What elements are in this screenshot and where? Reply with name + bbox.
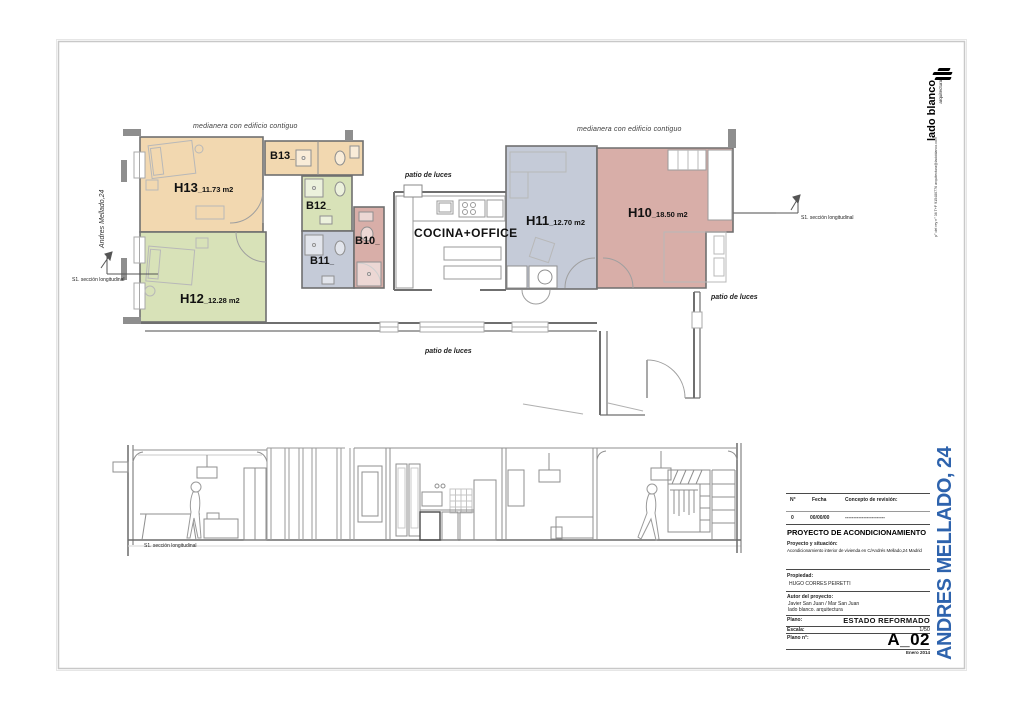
logo-tagline: arquitectura bbox=[938, 80, 943, 141]
rev-fecha-header: Fecha bbox=[812, 497, 826, 503]
situacion-label: Proyecto y situación: bbox=[787, 541, 838, 547]
room-h12 bbox=[140, 232, 266, 322]
section-label: S1. sección longitudinal bbox=[144, 543, 197, 549]
autor-value-2: lado blanco. arquitectura bbox=[788, 607, 843, 613]
sheet-frame bbox=[57, 40, 967, 671]
plano-value: ESTADO REFORMADO bbox=[786, 616, 930, 625]
drawing-sheet: medianera con edificio contiguo medianer… bbox=[0, 0, 1024, 724]
titleblock-line bbox=[786, 493, 930, 494]
room-label-h10: H10_18.50 m2 bbox=[628, 204, 688, 222]
propiedad-label: Propiedad: bbox=[787, 573, 813, 579]
person-walking bbox=[638, 484, 659, 540]
room-label-h12: H12_12.28 m2 bbox=[180, 290, 240, 308]
rev-no-value: 0 bbox=[791, 515, 794, 521]
room-label-h11: H11_12.70 m2 bbox=[526, 212, 585, 230]
room-label-b11: B11_ bbox=[310, 251, 334, 269]
room-label-b12: B12_ bbox=[306, 196, 331, 214]
room-label-h13: H13_11.73 m2 bbox=[174, 179, 233, 197]
autor-label: Autor del proyecto: bbox=[787, 594, 833, 600]
situacion-value: Acondicionamiento interior de vivienda e… bbox=[787, 548, 922, 553]
party-wall-label-right: medianera con edificio contiguo bbox=[577, 126, 682, 133]
room-label-b10: B10_ bbox=[355, 231, 380, 249]
logo-name: lado blanco bbox=[927, 80, 938, 141]
party-wall-label-left: medianera con edificio contiguo bbox=[193, 123, 298, 130]
patio-label-right: patio de luces bbox=[711, 294, 758, 301]
titleblock-line bbox=[786, 511, 930, 512]
titleblock-line bbox=[786, 524, 930, 525]
section-drawing bbox=[113, 443, 741, 556]
room-label-b13: B13_ bbox=[270, 146, 295, 164]
sheet-side-title: ANDRES MELLADO, 24 bbox=[934, 447, 957, 660]
rev-fecha-value: 00/00/00 bbox=[810, 515, 829, 521]
patio-label-bottom: patio de luces bbox=[425, 348, 472, 355]
section-marker-label-left: S1. sección longitudinal bbox=[72, 277, 125, 283]
logo-contact: p° del rey n° 36 T+F 915480776 arquitect… bbox=[934, 137, 938, 237]
propiedad-value: HUGO CORRES PEIRETTI bbox=[789, 581, 851, 587]
section-marker-label-right: S1. sección longitudinal bbox=[801, 215, 854, 221]
project-title: PROYECTO DE ACONDICIONAMIENTO bbox=[787, 528, 926, 537]
autor-value-1: Javier San Juan / Mar San Juan bbox=[788, 601, 859, 607]
rev-concepto-value: ------------------------ bbox=[845, 515, 885, 521]
patio-label-top: patio de luces bbox=[405, 172, 452, 179]
logo: lado blanco arquitectura bbox=[927, 80, 943, 141]
kitchen-label: COCINA+OFFICE bbox=[414, 226, 518, 240]
rev-concepto-header: Concepto de revisión: bbox=[845, 497, 898, 503]
titleblock-line bbox=[786, 569, 930, 570]
plano-fecha: Enero 2014 bbox=[858, 650, 930, 655]
rev-no-header: N° bbox=[790, 497, 796, 503]
numero-value: A_02 bbox=[786, 630, 930, 650]
wardrobe bbox=[668, 470, 710, 532]
street-label: Andres Mellado,24 bbox=[99, 190, 106, 248]
titleblock-line bbox=[786, 591, 930, 592]
